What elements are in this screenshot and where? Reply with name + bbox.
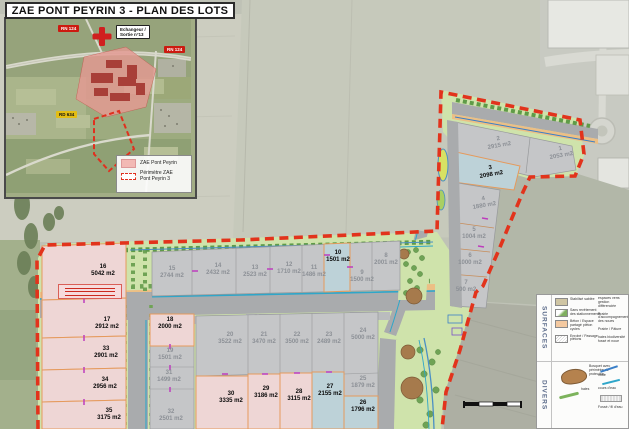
lot-26-parcel xyxy=(344,396,378,429)
legend-surfaces-right-column: espaces verts gestion différenciée Prair… xyxy=(598,297,628,348)
haie-swatch xyxy=(559,392,579,400)
rn124-label-right: RN 124 xyxy=(164,46,185,53)
inset-map: RN 124 RN 124 RD 634 Echangeur /Sortie n… xyxy=(4,17,197,199)
swatch-beton xyxy=(555,320,568,328)
inset-legend-zae-label: ZAE Pont Peyrin xyxy=(140,161,177,167)
legend-divers-right-column: noue cours d'eau Fossé / fil d'eau xyxy=(598,364,628,414)
plan-title: ZAE PONT PEYRIN 3 - PLAN DES LOTS xyxy=(5,2,235,19)
rd634-label: RD 634 xyxy=(56,111,77,118)
legend-surfaces-section: Stabilisé sablée Sans revêtement des sta… xyxy=(552,295,628,362)
inset-legend: ZAE Pont Peyrin Périmètre ZAEPont Peyrin… xyxy=(116,155,192,193)
perimeter-swatch xyxy=(121,173,136,180)
legend-divers-section: Bosquet avec périmètre de protection hai… xyxy=(552,362,628,428)
lot-30-parcel xyxy=(196,376,248,429)
legend-rail: SURFACES DIVERS xyxy=(537,295,552,428)
lot-27-parcel xyxy=(312,372,344,429)
lot-16-annotation xyxy=(58,284,122,299)
swatch-stabilise xyxy=(555,298,568,306)
swatch-sans-revetement xyxy=(555,309,568,317)
rn124-label-top: RN 124 xyxy=(58,25,79,32)
lot-18-parcel xyxy=(150,314,194,346)
inset-legend-perimeter-label: Périmètre ZAEPont Peyrin 3 xyxy=(140,171,173,183)
interchange-label: Echangeur /Sortie n°13 xyxy=(116,25,150,39)
fosse-swatch xyxy=(600,395,622,402)
plan-canvas: 12053 m2 22915 m2 32098 m2 41880 m2 5100… xyxy=(0,0,629,429)
swatch-enrobe xyxy=(555,335,568,343)
side-legend-panel: SURFACES DIVERS Stabilisé sablée Sans re… xyxy=(536,294,629,429)
zae-swatch xyxy=(121,159,136,168)
legend-section-divers-title: DIVERS xyxy=(537,362,551,428)
legend-section-surfaces-title: SURFACES xyxy=(537,295,551,362)
lot-10-parcel xyxy=(324,243,350,292)
noue-line-swatch xyxy=(600,365,618,372)
bosquet-swatch xyxy=(560,367,588,385)
cours-eau-line-swatch xyxy=(602,379,620,385)
